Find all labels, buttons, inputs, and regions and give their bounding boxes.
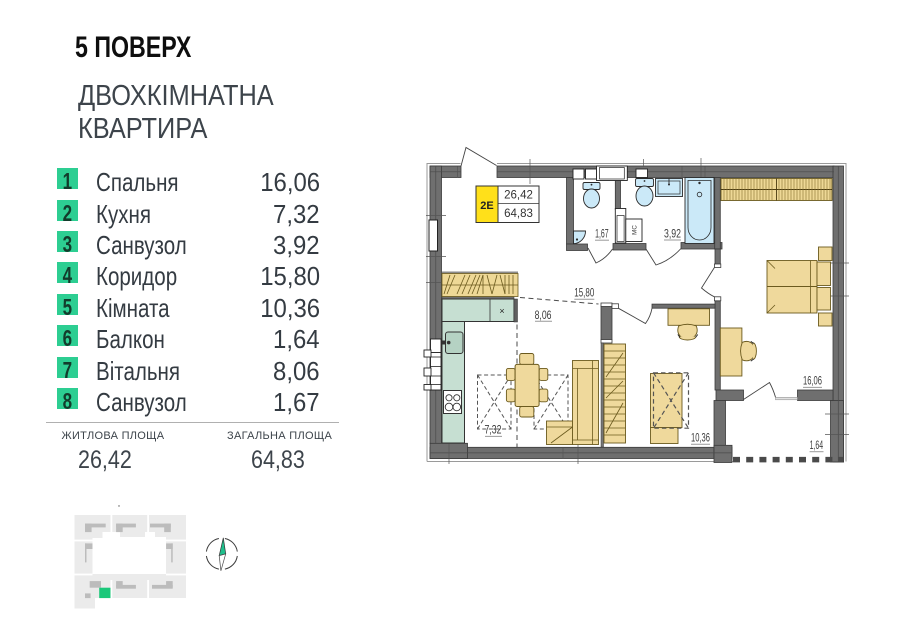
svg-text:10,36: 10,36	[691, 432, 710, 445]
svg-text:15,80: 15,80	[574, 286, 594, 299]
svg-text:МС: МС	[632, 225, 639, 235]
svg-text:26,42: 26,42	[504, 190, 533, 202]
svg-text:16,06: 16,06	[803, 375, 822, 388]
svg-text:2Е: 2Е	[480, 200, 493, 212]
svg-text:7,32: 7,32	[485, 424, 502, 437]
svg-text:×: ×	[499, 306, 504, 316]
svg-text:1,64: 1,64	[810, 439, 824, 452]
svg-text:8,06: 8,06	[535, 309, 552, 322]
svg-text:64,83: 64,83	[504, 208, 533, 220]
svg-text:3,92: 3,92	[664, 228, 681, 241]
svg-text:1,67: 1,67	[595, 228, 609, 241]
